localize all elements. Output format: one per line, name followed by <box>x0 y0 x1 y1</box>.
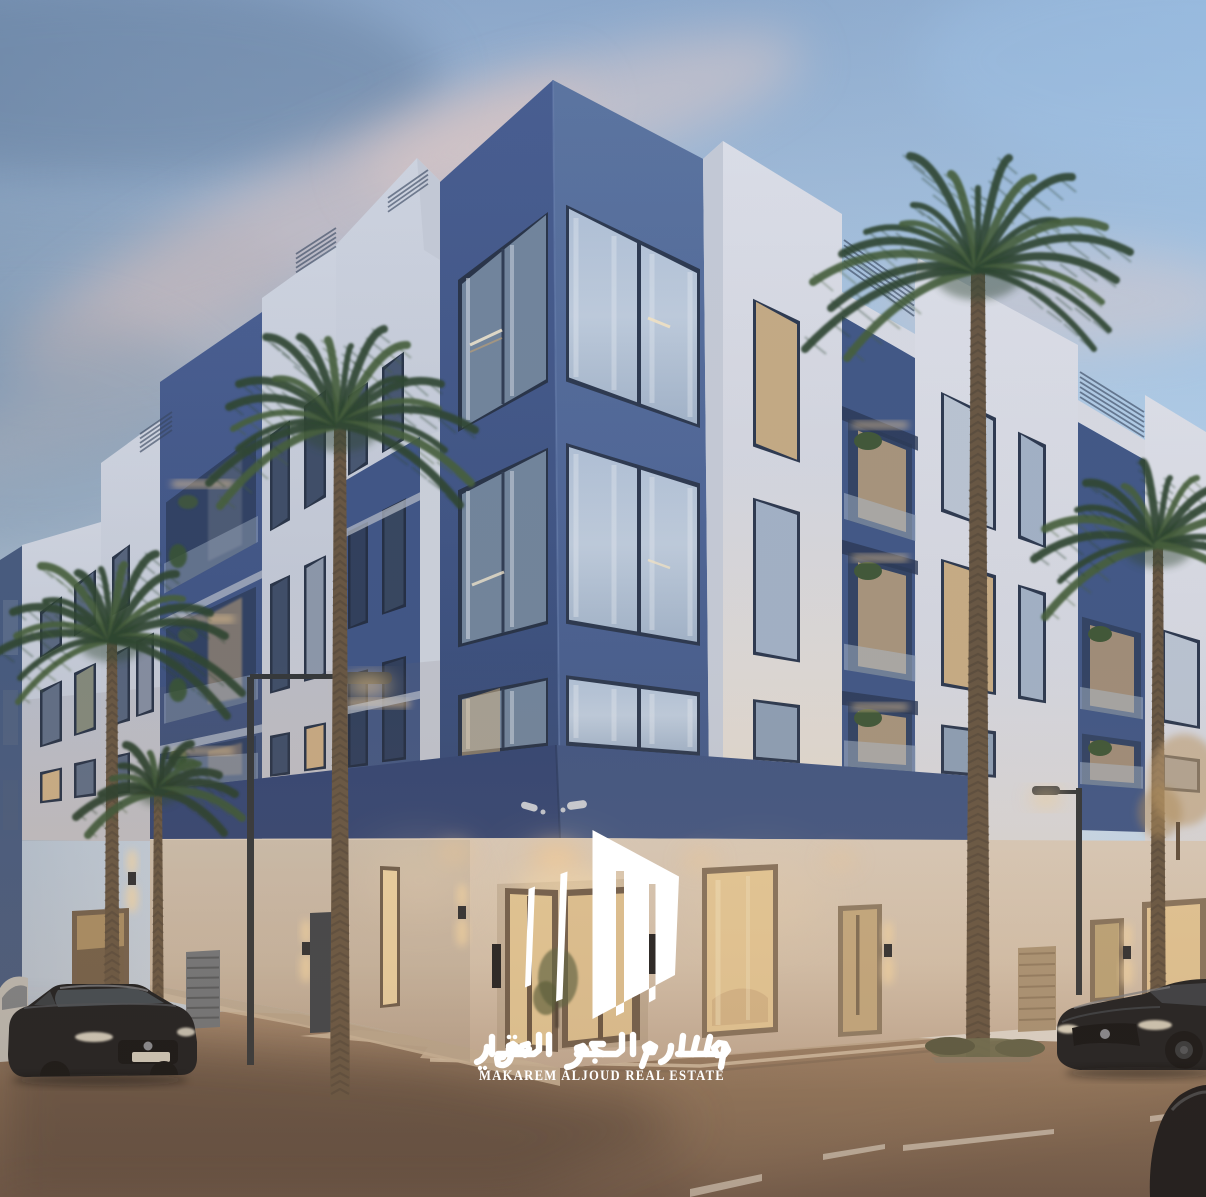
svg-text:MAKAREM ALJOUD REAL ESTATE: MAKAREM ALJOUD REAL ESTATE <box>479 1068 725 1084</box>
